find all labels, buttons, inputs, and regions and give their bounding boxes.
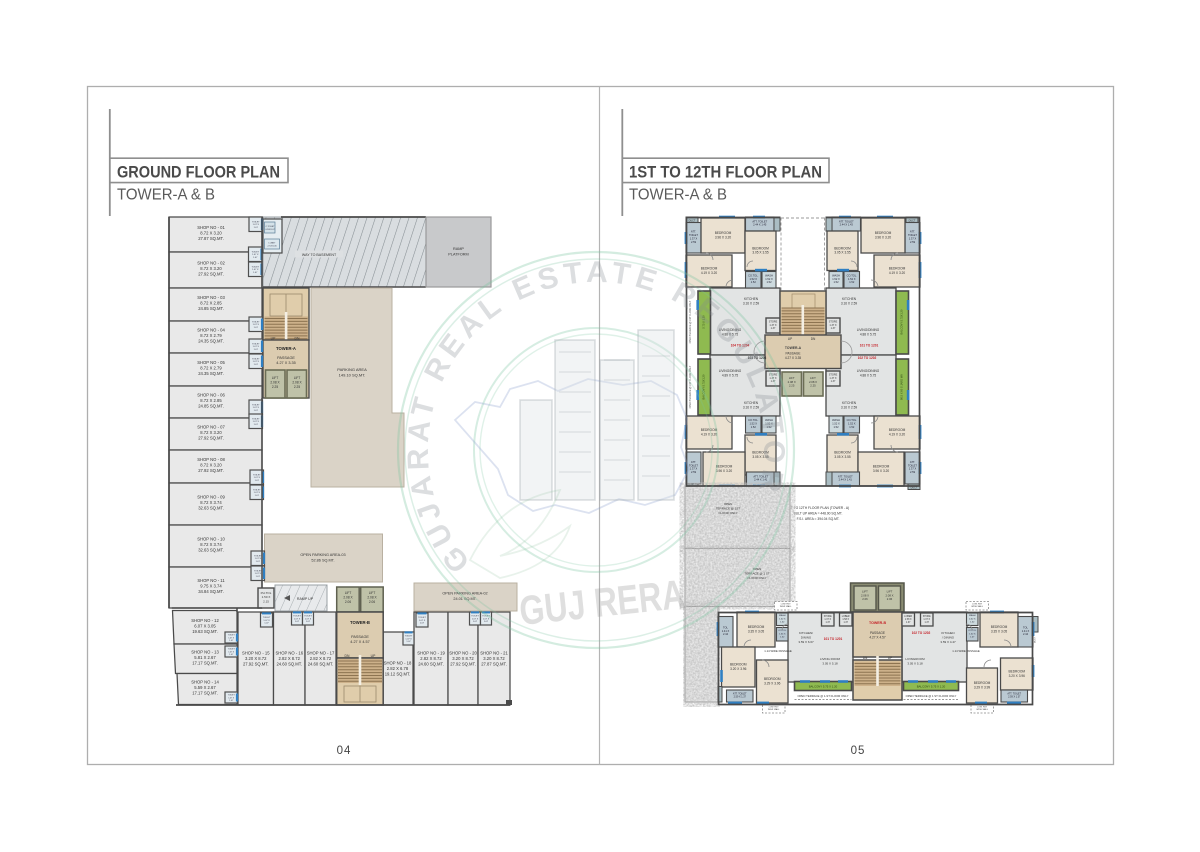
svg-text:1.37 X: 1.37 X (923, 619, 930, 621)
svg-text:SHOP NO - 03: SHOP NO - 03 (197, 295, 225, 300)
svg-text:1.07 X: 1.07 X (253, 407, 260, 409)
svg-text:ATT. TOILET: ATT. TOILET (838, 474, 853, 478)
svg-text:2.59: 2.59 (691, 240, 697, 244)
svg-text:PASSAGE: PASSAGE (786, 352, 801, 356)
svg-text:TOILET: TOILET (252, 321, 260, 323)
svg-text:OPEN PARKING AREA-02: OPEN PARKING AREA-02 (442, 592, 487, 596)
svg-text:CO.TOL: CO.TOL (968, 630, 977, 632)
svg-text:OPEN: OPEN (724, 502, 733, 506)
svg-text:1.37 X: 1.37 X (909, 236, 917, 240)
svg-text:27.92 SQ.MT.: 27.92 SQ.MT. (198, 436, 224, 441)
svg-text:BEDROOM: BEDROOM (701, 428, 718, 432)
svg-text:SHOP NO - 10: SHOP NO - 10 (197, 537, 225, 542)
svg-text:1.37: 1.37 (924, 622, 929, 624)
svg-text:2.82 X 8.72: 2.82 X 8.72 (310, 656, 332, 661)
svg-text:2.25: 2.25 (810, 384, 816, 388)
svg-text:2.44 X 1.41: 2.44 X 1.41 (839, 478, 853, 482)
svg-text:DUCT: DUCT (911, 487, 918, 490)
svg-text:4.88 X 5.75: 4.88 X 5.75 (860, 373, 877, 377)
svg-text:TOILET: TOILET (252, 358, 260, 360)
svg-text:3.96 X 3.20: 3.96 X 3.20 (716, 469, 733, 473)
svg-text:TOWER-A: TOWER-A (276, 346, 296, 351)
svg-text:SHOP NO - 05: SHOP NO - 05 (197, 360, 225, 365)
svg-text:3.96 X 3.20: 3.96 X 3.20 (715, 235, 732, 239)
svg-text:SHOP NO - 07: SHOP NO - 07 (197, 425, 225, 430)
svg-text:TOWER-A & B: TOWER-A & B (629, 187, 727, 204)
svg-text:3.35 X 3.05: 3.35 X 3.05 (748, 629, 765, 633)
svg-text:1.52 X: 1.52 X (848, 277, 856, 281)
svg-text:1.58 X: 1.58 X (905, 619, 912, 621)
svg-text:F.S.I. AREA = 394.04 SQ.MT.: F.S.I. AREA = 394.04 SQ.MT. (797, 517, 840, 521)
svg-text:BEDROOM: BEDROOM (834, 451, 851, 455)
svg-text:3.05 X 5.18: 3.05 X 5.18 (907, 661, 923, 665)
svg-text:LOBER: LOBER (842, 616, 850, 618)
svg-text:1.52: 1.52 (833, 425, 839, 429)
svg-text:/ DINING: / DINING (942, 635, 955, 639)
svg-text:1.37: 1.37 (831, 327, 836, 330)
svg-text:TOILET: TOILET (471, 616, 479, 618)
svg-text:27.87 SQ.MT.: 27.87 SQ.MT. (198, 236, 224, 241)
svg-text:BEDROOM: BEDROOM (889, 267, 906, 271)
svg-text:8.72 X 3.20: 8.72 X 3.20 (200, 231, 222, 236)
svg-text:1.52 X: 1.52 X (779, 618, 786, 620)
svg-text:1.07 X: 1.07 X (228, 697, 234, 699)
svg-text:WASH: WASH (832, 418, 840, 422)
svg-text:24.60 SQ.MT.: 24.60 SQ.MT. (308, 662, 334, 667)
svg-text:24.35 SQ.MT.: 24.35 SQ.MT. (198, 339, 224, 344)
svg-text:BEDROOM: BEDROOM (764, 677, 781, 681)
svg-text:ATT.: ATT. (691, 460, 696, 464)
svg-text:STORE: STORE (923, 616, 931, 618)
svg-text:PARKING AREA: PARKING AREA (337, 367, 367, 372)
svg-text:1.37 X: 1.37 X (690, 467, 698, 471)
svg-text:32.63 SQ.MT.: 32.63 SQ.MT. (198, 506, 224, 511)
svg-text:TOWER-A: TOWER-A (785, 346, 802, 350)
svg-text:8.72 X 3.74: 8.72 X 3.74 (200, 500, 222, 505)
svg-text:3.96 X 3.20: 3.96 X 3.20 (875, 235, 892, 239)
svg-text:STORE: STORE (824, 616, 832, 618)
svg-text:CO.TOL.: CO.TOL. (847, 418, 858, 422)
svg-text:ATT.: ATT. (910, 460, 915, 464)
svg-text:6.07 X 3.05: 6.07 X 3.05 (194, 623, 216, 628)
svg-text:8.72 X 2.79: 8.72 X 2.79 (200, 366, 222, 371)
svg-text:1.52: 1.52 (833, 280, 839, 284)
svg-text:24.85 SQ.MT.: 24.85 SQ.MT. (198, 306, 224, 311)
svg-text:1.07 X: 1.07 X (483, 618, 490, 620)
svg-text:TOL: TOL (1023, 625, 1029, 629)
svg-text:1.14 WIDE PASSAGE: 1.14 WIDE PASSAGE (764, 649, 792, 653)
svg-text:SHOP NO - 06: SHOP NO - 06 (197, 393, 225, 398)
svg-text:1.52 X: 1.52 X (750, 277, 758, 281)
svg-text:SHOP NO - 17: SHOP NO - 17 (307, 651, 335, 656)
svg-text:9.75 X 3.74: 9.75 X 3.74 (200, 584, 222, 589)
svg-text:1.07 X: 1.07 X (263, 620, 270, 622)
svg-text:17.17 SQ.MT.: 17.17 SQ.MT. (192, 660, 218, 665)
svg-text:WDW. WALL: WDW. WALL (768, 708, 780, 711)
svg-text:TOILET: TOILET (908, 463, 917, 467)
svg-text:1.14 WIDE PASSAGE: 1.14 WIDE PASSAGE (952, 649, 980, 653)
svg-text:1.37: 1.37 (831, 380, 836, 383)
svg-text:102 TO 1202: 102 TO 1202 (858, 356, 877, 360)
svg-text:3.35 X 3.05: 3.35 X 3.05 (991, 629, 1008, 633)
svg-text:BALCONY 5.75 X 1.20: BALCONY 5.75 X 1.20 (809, 685, 838, 689)
svg-text:SHOP NO - 11: SHOP NO - 11 (197, 578, 225, 583)
svg-text:4.19 X 3.20: 4.19 X 3.20 (701, 271, 718, 275)
svg-text:2.59 X 1.37: 2.59 X 1.37 (1008, 696, 1021, 699)
svg-text:TOILET: TOILET (228, 695, 236, 697)
svg-text:1.07 X: 1.07 X (255, 558, 262, 560)
svg-text:SHOP NO - 02: SHOP NO - 02 (197, 261, 225, 266)
svg-text:3.20 X 3.96: 3.20 X 3.96 (1009, 674, 1026, 678)
svg-text:WASH: WASH (779, 614, 786, 617)
svg-text:1.52 X: 1.52 X (832, 422, 840, 426)
svg-text:1.07 X: 1.07 X (252, 254, 259, 256)
svg-text:1.37 X: 1.37 X (824, 619, 831, 621)
svg-text:2.25: 2.25 (294, 385, 300, 389)
svg-text:KITCHEN: KITCHEN (842, 401, 857, 405)
svg-text:TOILET: TOILET (689, 463, 698, 467)
svg-text:1.07 X: 1.07 X (253, 324, 260, 326)
svg-text:1.41 X: 1.41 X (722, 629, 730, 633)
svg-text:RAMP: RAMP (453, 247, 464, 251)
svg-text:CO.TOL.: CO.TOL. (847, 273, 858, 277)
svg-text:8.72 X 3.20: 8.72 X 3.20 (200, 266, 222, 271)
svg-text:1.52: 1.52 (751, 280, 757, 284)
svg-text:TERRACE @ 1ST: TERRACE @ 1ST (716, 507, 741, 511)
svg-text:DUCT: DUCT (1035, 636, 1037, 643)
svg-text:TOWER-A & B: TOWER-A & B (117, 187, 215, 204)
svg-text:BALCONY 5.75 X 1.20: BALCONY 5.75 X 1.20 (917, 685, 946, 689)
svg-text:19.12 SQ.MT.: 19.12 SQ.MT. (385, 672, 411, 677)
svg-text:TOL: TOL (723, 625, 729, 629)
svg-text:WAY TO BASEMENT: WAY TO BASEMENT (302, 253, 337, 257)
svg-text:3.29 X 3.96: 3.29 X 3.96 (764, 681, 781, 685)
svg-text:TOILET: TOILET (252, 221, 260, 223)
svg-text:BEDROOM: BEDROOM (834, 246, 851, 250)
svg-text:52.86 SQ.MT.: 52.86 SQ.MT. (311, 558, 334, 562)
svg-text:TOWER-B: TOWER-B (350, 620, 370, 625)
svg-text:WASH: WASH (832, 273, 840, 277)
svg-text:BEDROOM: BEDROOM (1009, 670, 1026, 674)
svg-text:2.06: 2.06 (369, 600, 375, 604)
svg-text:2.08 X: 2.08 X (367, 595, 377, 599)
svg-text:1.07 X: 1.07 X (419, 620, 426, 622)
svg-text:BEDROOM: BEDROOM (715, 231, 732, 235)
svg-text:1.07 X: 1.07 X (254, 477, 261, 479)
svg-text:8.72 X 3.20: 8.72 X 3.20 (200, 463, 222, 468)
svg-text:27.92 SQ.MT.: 27.92 SQ.MT. (450, 662, 476, 667)
svg-text:SHOP NO - 14: SHOP NO - 14 (191, 680, 219, 685)
svg-text:LOBER: LOBER (904, 616, 912, 618)
svg-text:2.06: 2.06 (345, 600, 351, 604)
svg-text:WASH: WASH (969, 614, 976, 617)
svg-text:GROUND FLOOR PLAN: GROUND FLOOR PLAN (117, 163, 280, 181)
svg-text:1.07 X: 1.07 X (253, 346, 260, 348)
svg-text:1.37: 1.37 (825, 622, 830, 624)
svg-text:KITCHEN: KITCHEN (842, 297, 857, 301)
svg-text:KITCHEN: KITCHEN (941, 631, 954, 635)
svg-text:SHOP NO - 16: SHOP NO - 16 (275, 651, 303, 656)
svg-text:OPEN TERRACE @ 1 ST FLOOR ONLY: OPEN TERRACE @ 1 ST FLOOR ONLY (906, 694, 957, 698)
svg-text:27.92 SQ.MT.: 27.92 SQ.MT. (243, 662, 269, 667)
svg-text:2.59 X 1.37: 2.59 X 1.37 (734, 696, 747, 699)
svg-text:1.07 X: 1.07 X (253, 421, 260, 423)
svg-text:2.72X1.06: 2.72X1.06 (267, 246, 277, 248)
svg-text:5.59 X 2.67: 5.59 X 2.67 (194, 685, 216, 690)
svg-text:BEDROOM: BEDROOM (974, 681, 991, 685)
svg-text:TOILET: TOILET (252, 404, 260, 406)
svg-text:19.63 SQ.MT.: 19.63 SQ.MT. (192, 629, 218, 634)
svg-text:1.07 X: 1.07 X (252, 269, 259, 271)
svg-text:CO.TOL.: CO.TOL. (748, 273, 759, 277)
svg-text:WDW. WALL: WDW. WALL (976, 708, 988, 711)
svg-text:2.82 X 6.78: 2.82 X 6.78 (387, 666, 409, 671)
svg-text:4.19 X 3.20: 4.19 X 3.20 (701, 432, 718, 436)
svg-text:8.72 X 3.74: 8.72 X 3.74 (200, 542, 222, 547)
svg-text:TOILET: TOILET (405, 636, 413, 638)
svg-text:24.85 SQ.MT.: 24.85 SQ.MT. (198, 404, 224, 409)
svg-text:LIVING/DINING: LIVING/DINING (857, 369, 880, 373)
svg-text:3.20 X 8.72: 3.20 X 8.72 (483, 656, 505, 661)
svg-text:1.58 X: 1.58 X (842, 619, 849, 621)
svg-text:4.89 X 5.75: 4.89 X 5.75 (722, 373, 739, 377)
svg-text:1.37: 1.37 (906, 622, 911, 624)
svg-text:1.07 X: 1.07 X (472, 618, 479, 620)
svg-text:8.72 X 2.85: 8.72 X 2.85 (200, 301, 222, 306)
svg-text:ATT. TOILET: ATT. TOILET (839, 219, 854, 223)
svg-text:SHOP NO - 12: SHOP NO - 12 (191, 618, 219, 623)
svg-text:WASH: WASH (765, 273, 773, 277)
svg-text:TOILET: TOILET (418, 617, 426, 619)
svg-text:SHOP NO - 15: SHOP NO - 15 (242, 651, 270, 656)
svg-text:27.92 SQ.MT.: 27.92 SQ.MT. (198, 272, 224, 277)
svg-text:1.07 X: 1.07 X (228, 651, 234, 653)
svg-text:BEDROOM: BEDROOM (752, 246, 769, 250)
svg-text:32.63 SQ.MT.: 32.63 SQ.MT. (198, 548, 224, 553)
svg-text:3.20 X 8.72: 3.20 X 8.72 (452, 656, 474, 661)
svg-text:BEDROOM: BEDROOM (991, 625, 1008, 629)
svg-text:2.44 X 1.45: 2.44 X 1.45 (753, 223, 767, 227)
svg-text:4.27 X 4.57: 4.27 X 4.57 (350, 640, 369, 644)
svg-text:1.52: 1.52 (849, 280, 855, 284)
svg-text:5.81 X 2.67: 5.81 X 2.67 (194, 655, 216, 660)
svg-text:2.44 X 1.43: 2.44 X 1.43 (840, 223, 854, 227)
svg-text:SHOP NO - 13: SHOP NO - 13 (191, 649, 219, 654)
svg-text:2.44: 2.44 (1023, 632, 1029, 636)
svg-text:TOILET: TOILET (252, 343, 260, 345)
svg-text:4.27 X 3.35: 4.27 X 3.35 (276, 361, 295, 365)
svg-text:1.07 X: 1.07 X (294, 618, 301, 620)
svg-text:DN: DN (811, 337, 816, 341)
svg-text:SHOP NO - 01: SHOP NO - 01 (197, 225, 225, 230)
svg-text:LIVING ROOM: LIVING ROOM (820, 657, 841, 661)
svg-text:BEDROOM: BEDROOM (716, 465, 733, 469)
svg-text:TOILET: TOILET (228, 649, 236, 651)
svg-text:BALCONY 5.75X1.20: BALCONY 5.75X1.20 (900, 309, 904, 334)
svg-text:2.06: 2.06 (887, 597, 893, 601)
svg-text:1.07 X: 1.07 X (253, 361, 260, 363)
svg-text:1.52 X: 1.52 X (765, 277, 773, 281)
svg-text:TOWER-B: TOWER-B (869, 621, 887, 625)
svg-text:4.27 X 3.35: 4.27 X 3.35 (785, 356, 802, 360)
svg-text:OPEN TERRACE @ 1-ST FLOOR ONLY: OPEN TERRACE @ 1-ST FLOOR ONLY (797, 694, 848, 698)
svg-text:4.88 X 5.75: 4.88 X 5.75 (860, 332, 877, 336)
svg-text:WDW. WALL: WDW. WALL (971, 605, 983, 608)
svg-text:1.07 X: 1.07 X (405, 638, 412, 640)
svg-text:LIFT: LIFT (369, 591, 376, 595)
svg-text:C.TOILET: C.TOILET (266, 226, 276, 228)
svg-text:TOILET: TOILET (254, 555, 262, 557)
svg-text:8.72 X 2.79: 8.72 X 2.79 (200, 333, 222, 338)
svg-text:BEDROOM: BEDROOM (730, 663, 747, 667)
svg-text:3.59 X 6.67: 3.59 X 6.67 (798, 640, 814, 644)
svg-text:UP: UP (788, 337, 792, 341)
svg-text:1.07 X: 1.07 X (253, 224, 260, 226)
svg-text:04: 04 (337, 745, 352, 757)
svg-text:4.52 X: 4.52 X (969, 618, 976, 620)
svg-text:KITCHEN/: KITCHEN/ (799, 631, 813, 635)
svg-text:TOILET: TOILET (263, 617, 271, 619)
svg-text:4.27 X 4.57: 4.27 X 4.57 (869, 635, 886, 639)
svg-text:SHOP NO - 04: SHOP NO - 04 (197, 328, 225, 333)
svg-text:17.17 SQ.MT.: 17.17 SQ.MT. (192, 691, 218, 696)
svg-text:LOBBY: LOBBY (269, 243, 276, 245)
svg-text:1.52: 1.52 (849, 425, 855, 429)
svg-text:101 TO 1201: 101 TO 1201 (824, 637, 843, 641)
svg-text:RAMP UP: RAMP UP (297, 597, 314, 601)
svg-text:3.05 X 3.55: 3.05 X 3.55 (834, 455, 851, 459)
svg-text:LIFT: LIFT (294, 376, 301, 380)
svg-text:0.90X1.07: 0.90X1.07 (265, 229, 275, 231)
svg-text:27.92 SQ.MT.: 27.92 SQ.MT. (198, 468, 224, 473)
svg-text:2.08 X: 2.08 X (270, 380, 280, 384)
svg-text:1.37: 1.37 (771, 327, 776, 330)
svg-text:SHOP NO - 21: SHOP NO - 21 (480, 651, 508, 656)
svg-text:SHOP NO - 08: SHOP NO - 08 (197, 457, 225, 462)
svg-text:TOILET: TOILET (689, 233, 698, 237)
svg-text:TOILET: TOILET (251, 266, 259, 268)
svg-text:1.52 X: 1.52 X (969, 633, 976, 635)
svg-text:TOILET: TOILET (251, 251, 259, 253)
svg-text:TOILET: TOILET (908, 233, 917, 237)
svg-text:3.20 X 8.72: 3.20 X 8.72 (245, 656, 267, 661)
svg-text:BULT UP AREA = 448.90 SQ.MT.: BULT UP AREA = 448.90 SQ.MT. (794, 512, 843, 516)
svg-text:PASSAGE: PASSAGE (277, 356, 295, 360)
svg-text:LIFT: LIFT (272, 376, 279, 380)
svg-text:4.19 X 3.20: 4.19 X 3.20 (889, 271, 906, 275)
svg-text:ATT. TOILET: ATT. TOILET (752, 219, 767, 223)
svg-text:KITCHEN: KITCHEN (744, 297, 759, 301)
svg-text:2.82 X 8.72: 2.82 X 8.72 (279, 656, 301, 661)
svg-text:2.59: 2.59 (910, 240, 916, 244)
svg-text:PASSAGE: PASSAGE (351, 635, 369, 639)
svg-text:102 TO 1202: 102 TO 1202 (912, 631, 931, 635)
svg-text:1.52 X: 1.52 X (832, 277, 840, 281)
svg-text:FLOOR ONLY: FLOOR ONLY (718, 511, 737, 515)
svg-text:LIFT: LIFT (345, 591, 352, 595)
svg-text:2.44: 2.44 (723, 632, 729, 636)
svg-text:PLATFORM: PLATFORM (448, 252, 468, 256)
svg-text:1.41 X: 1.41 X (1022, 629, 1030, 633)
svg-text:3.16 X 2.59: 3.16 X 2.59 (841, 405, 858, 409)
svg-text:34.84 SQ.MT.: 34.84 SQ.MT. (198, 589, 224, 594)
svg-text:4.19 X 3.20: 4.19 X 3.20 (889, 432, 906, 436)
svg-text:3.96 X 3.20: 3.96 X 3.20 (873, 469, 890, 473)
svg-text:TOILET: TOILET (253, 489, 261, 491)
svg-text:3.16 X 2.59: 3.16 X 2.59 (841, 301, 858, 305)
svg-text:ATT.: ATT. (910, 230, 915, 234)
svg-text:2.59: 2.59 (910, 470, 916, 474)
svg-text:1.07 X: 1.07 X (254, 492, 261, 494)
svg-text:2.25: 2.25 (272, 385, 278, 389)
svg-text:BEDROOM: BEDROOM (701, 267, 718, 271)
svg-text:BEDROOM: BEDROOM (875, 231, 892, 235)
svg-text:2.08 X: 2.08 X (292, 380, 302, 384)
svg-text:86.5 X 60 S JARD WA: 86.5 X 60 S JARD WA (900, 374, 904, 400)
svg-text:BEDROOM: BEDROOM (873, 465, 890, 469)
svg-text:BEDROOM: BEDROOM (889, 428, 906, 432)
svg-text:2.15: 2.15 (263, 599, 269, 603)
svg-text:3.05 X 3.55: 3.05 X 3.55 (834, 251, 851, 255)
svg-text:1ST TO 12TH FLOOR PLAN: 1ST TO 12TH FLOOR PLAN (629, 163, 822, 181)
svg-text:8.72 X 2.85: 8.72 X 2.85 (200, 398, 222, 403)
svg-text:TOILET: TOILET (254, 570, 262, 572)
svg-text:2.06: 2.06 (862, 597, 868, 601)
svg-text:1ST TO 12TH FLOOR PLAN (TOWER: 1ST TO 12TH FLOOR PLAN (TOWER - A) (787, 506, 849, 510)
svg-text:05: 05 (851, 745, 866, 757)
svg-text:1.52 X: 1.52 X (848, 422, 856, 426)
svg-text:PASSAGE: PASSAGE (870, 631, 885, 635)
svg-text:149.10 SQ.MT.: 149.10 SQ.MT. (339, 373, 366, 378)
svg-text:27.87 SQ.MT.: 27.87 SQ.MT. (481, 662, 507, 667)
svg-text:1.37: 1.37 (843, 622, 848, 624)
svg-text:8.72 X 3.20: 8.72 X 3.20 (200, 430, 222, 435)
svg-text:3.05 X 3.55: 3.05 X 3.55 (752, 251, 769, 255)
svg-text:SHOP NO - 20: SHOP NO - 20 (449, 651, 477, 656)
svg-text:2.82 X 8.72: 2.82 X 8.72 (420, 656, 442, 661)
svg-text:TOILET: TOILET (252, 418, 260, 420)
svg-text:FLOOR ONLY: FLOOR ONLY (747, 576, 766, 580)
svg-text:1.37 X: 1.37 X (690, 236, 698, 240)
svg-text:24.35 SQ.MT.: 24.35 SQ.MT. (198, 371, 224, 376)
svg-text:1.52: 1.52 (766, 280, 772, 284)
svg-text:2.59: 2.59 (691, 470, 697, 474)
svg-text:DINING: DINING (801, 635, 812, 639)
svg-text:LIVING/DINING: LIVING/DINING (857, 328, 880, 332)
svg-text:OPEN PARKING AREA-03: OPEN PARKING AREA-03 (300, 553, 345, 557)
svg-text:3.29 X 3.99: 3.29 X 3.99 (974, 685, 991, 689)
svg-text:TOILET: TOILET (293, 616, 301, 618)
svg-text:3.05 X 5.18: 3.05 X 5.18 (822, 661, 838, 665)
svg-text:TOILET: TOILET (253, 474, 261, 476)
svg-text:3.59 X 4.47: 3.59 X 4.47 (940, 640, 956, 644)
svg-text:TOILET: TOILET (304, 616, 312, 618)
svg-text:1.07 X: 1.07 X (305, 618, 312, 620)
svg-text:1.34 X: 1.34 X (779, 633, 786, 635)
svg-text:3.20 X 3.96: 3.20 X 3.96 (730, 667, 747, 671)
svg-text:1.07 X: 1.07 X (255, 573, 262, 575)
svg-text:2.25: 2.25 (789, 384, 795, 388)
svg-text:TOILET: TOILET (228, 635, 236, 637)
svg-text:SHOP NO - 19: SHOP NO - 19 (417, 651, 445, 656)
svg-text:1.07 X: 1.07 X (228, 637, 234, 639)
svg-text:1.37 X: 1.37 X (909, 467, 917, 471)
svg-text:LIVINGROOM: LIVINGROOM (905, 657, 925, 661)
svg-text:101 TO 1201: 101 TO 1201 (860, 344, 879, 348)
svg-text:SHOP NO - 18: SHOP NO - 18 (384, 661, 412, 666)
svg-text:2.08 X: 2.08 X (343, 595, 353, 599)
svg-text:BEDROOM: BEDROOM (748, 625, 765, 629)
